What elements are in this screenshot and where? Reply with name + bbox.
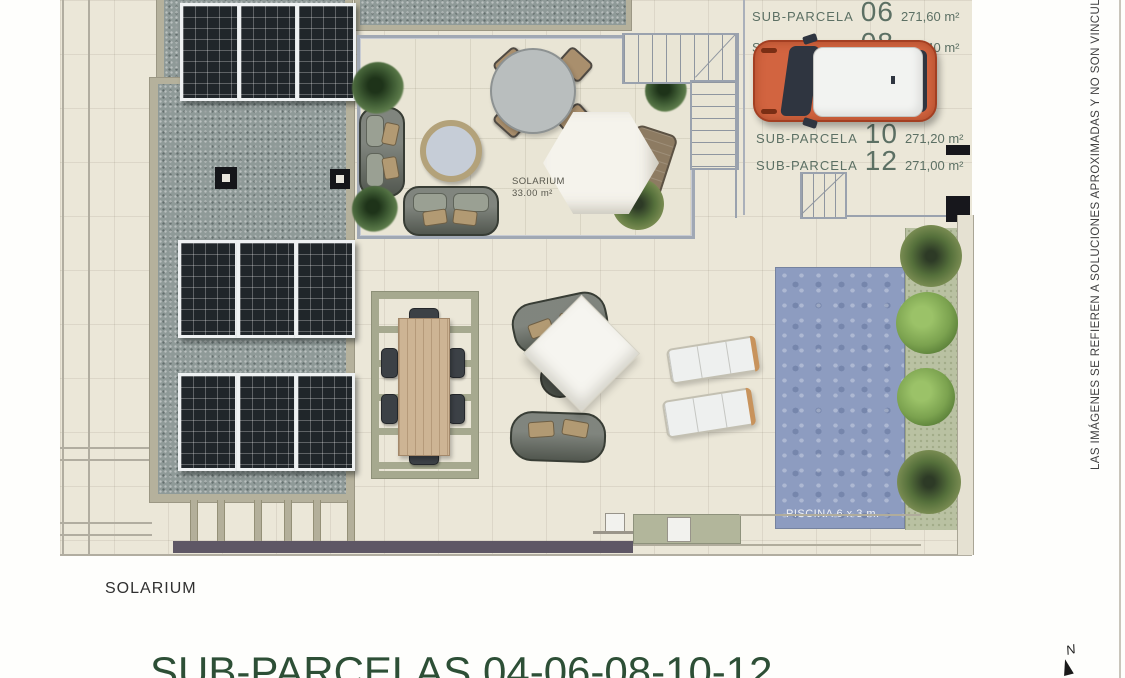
beam-line — [347, 500, 355, 542]
pergola-chair — [381, 394, 398, 424]
stairs-vertical-flight — [690, 80, 739, 170]
sofa-vertical — [359, 107, 405, 197]
beam-line — [313, 500, 321, 542]
solar-panel — [180, 3, 240, 101]
gravel-strip-top-frame — [355, 0, 631, 30]
walkway-joint — [60, 534, 152, 536]
car-top-view — [753, 40, 937, 122]
gravel-strip-top — [360, 0, 626, 25]
car-roof — [813, 47, 923, 117]
planter-fixture — [667, 517, 691, 542]
shower-rail — [593, 531, 633, 534]
parcel-name: SUB-PARCELA — [756, 158, 858, 173]
footer-solarium-label: SOLARIUM — [105, 580, 197, 598]
compass: N — [1052, 642, 1088, 678]
roof-vent — [215, 167, 237, 189]
parking-left-boundary — [743, 0, 745, 215]
beam-line — [217, 500, 225, 542]
lounge-sofa-bottom — [509, 410, 607, 463]
left-wall-line-inner — [88, 0, 90, 556]
round-bush — [897, 368, 955, 426]
solar-panel — [237, 373, 297, 471]
compass-north-icon — [1060, 658, 1074, 676]
solar-panel — [296, 3, 356, 101]
pergola-chair — [448, 394, 465, 424]
compass-north-label: N — [1064, 641, 1077, 658]
round-bush — [896, 292, 958, 354]
beam-line — [284, 500, 292, 542]
walkway-joint — [60, 447, 152, 449]
swimming-pool: PISCINA 6 x 3 m. — [775, 267, 905, 529]
bottom-wall-bar — [173, 541, 633, 553]
page-title: SUB-PARCELAS 04-06-08-10-12 — [150, 648, 773, 678]
parcel-area: 271,60 m² — [901, 9, 960, 24]
roof-vent — [330, 169, 350, 189]
walkway-joint — [60, 522, 152, 524]
car-antenna — [891, 76, 895, 84]
parcel-name: SUB-PARCELA — [752, 9, 854, 24]
grass-plant — [897, 450, 961, 514]
left-wall-line — [62, 0, 64, 556]
terrace-edge-line — [633, 544, 921, 546]
planter-strip — [633, 514, 741, 544]
solar-panel — [295, 240, 355, 338]
wicker-coffee-table — [420, 120, 482, 182]
solar-panel — [178, 240, 238, 338]
parcel-label-12: SUB-PARCELA 12 271,00 m² — [756, 145, 964, 177]
solarium-area-value: 33.00 m² — [512, 188, 565, 200]
car-headlight — [761, 109, 777, 114]
disclaimer-text: LAS IMÁGENES SE REFIEREN A SOLUCIONES AP… — [1090, 0, 1102, 470]
terrace-edge-line — [739, 514, 921, 516]
solarium-area-title: SOLARIUM — [512, 176, 565, 188]
parcel-number: 06 — [861, 0, 894, 28]
solar-panel — [237, 240, 297, 338]
solarium-area-label: SOLARIUM 33.00 m² — [512, 176, 565, 200]
outdoor-shower — [605, 513, 625, 533]
potted-plant — [352, 62, 404, 114]
wood-dining-table — [398, 318, 450, 456]
small-stair — [800, 172, 847, 219]
parcel-name: SUB-PARCELA — [756, 131, 858, 146]
right-border-line — [1119, 0, 1121, 678]
solar-panel — [178, 373, 238, 471]
pergola-chair — [448, 348, 465, 378]
stairs-horizontal-flight — [622, 33, 739, 84]
stairs-right-wall — [735, 33, 737, 218]
sofa-horizontal — [403, 186, 499, 236]
solar-panel — [238, 3, 298, 101]
pergola-chair — [381, 348, 398, 378]
beam-line — [254, 500, 262, 542]
plan-bottom-edge — [60, 554, 972, 556]
solar-panel — [295, 373, 355, 471]
grass-plant — [900, 225, 962, 287]
floor-plan-page: SOLARIUM 33.00 m² SUB-PARCELA 06 271,60 … — [0, 0, 1125, 678]
beam-line — [190, 500, 198, 542]
parcel-area: 271,20 m² — [905, 131, 964, 146]
parcel-area: 271,00 m² — [905, 158, 964, 173]
potted-plant — [352, 186, 398, 232]
parcel-label-06: SUB-PARCELA 06 271,60 m² — [752, 0, 960, 28]
car-headlight — [761, 48, 777, 53]
round-dining-table — [490, 48, 576, 134]
walkway-joint — [60, 459, 152, 461]
parcel-number: 12 — [865, 145, 898, 177]
